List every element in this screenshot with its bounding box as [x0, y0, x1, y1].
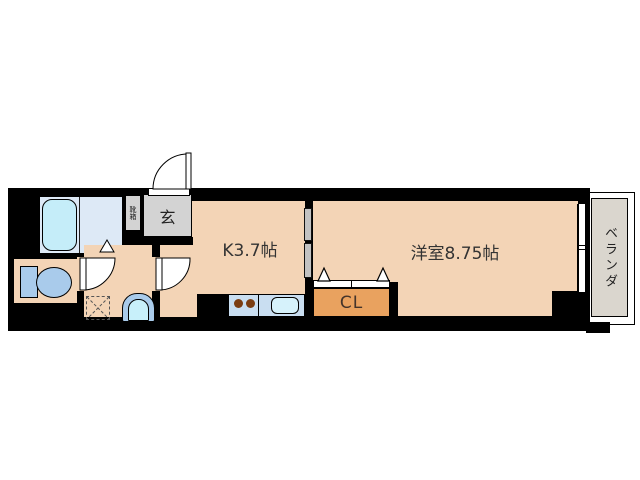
stove-burner-icon: [246, 299, 255, 308]
western-room-label: 洋室8.75帖: [380, 239, 530, 264]
kitchen-label: K3.7帖: [195, 236, 305, 261]
entrance-threshold: [148, 188, 190, 196]
counter-end-wall: [197, 294, 228, 317]
closet-door-track: [313, 280, 390, 288]
entrance-label: 玄: [159, 204, 175, 228]
balcony-label: ベランダ: [600, 226, 619, 290]
entrance-door-swing: [153, 154, 188, 189]
sliding-partition: [304, 243, 312, 278]
bedroom-corner-wall: [552, 291, 590, 331]
floor-plan: ベランダ 玄 靴箱 K3.7帖 洋室8.75帖 CL: [0, 0, 640, 480]
closet: CL: [313, 288, 390, 317]
shoe-cabinet-label: 靴箱: [128, 206, 138, 220]
entrance-door-leaf: [186, 153, 191, 189]
balcony: ベランダ: [591, 198, 628, 317]
stove-burner-icon: [234, 299, 243, 308]
toilet-bowl: [36, 267, 72, 298]
wash-basin-bowl: [128, 299, 149, 321]
window-latch: [579, 245, 585, 246]
entrance-area: 玄: [143, 194, 192, 237]
closet-wall: [390, 282, 398, 317]
sliding-partition: [304, 208, 312, 241]
washing-machine-space: [86, 296, 110, 320]
counter-divider: [258, 294, 259, 317]
bathtub: [42, 199, 77, 251]
window-latch: [579, 249, 585, 250]
entrance-wall: [143, 237, 193, 245]
closet-label: CL: [340, 293, 363, 313]
kitchen-sink: [271, 297, 299, 314]
shoe-cabinet: 靴箱: [125, 195, 141, 231]
bathroom-divider: [79, 197, 80, 253]
sliding-window: [577, 204, 587, 292]
